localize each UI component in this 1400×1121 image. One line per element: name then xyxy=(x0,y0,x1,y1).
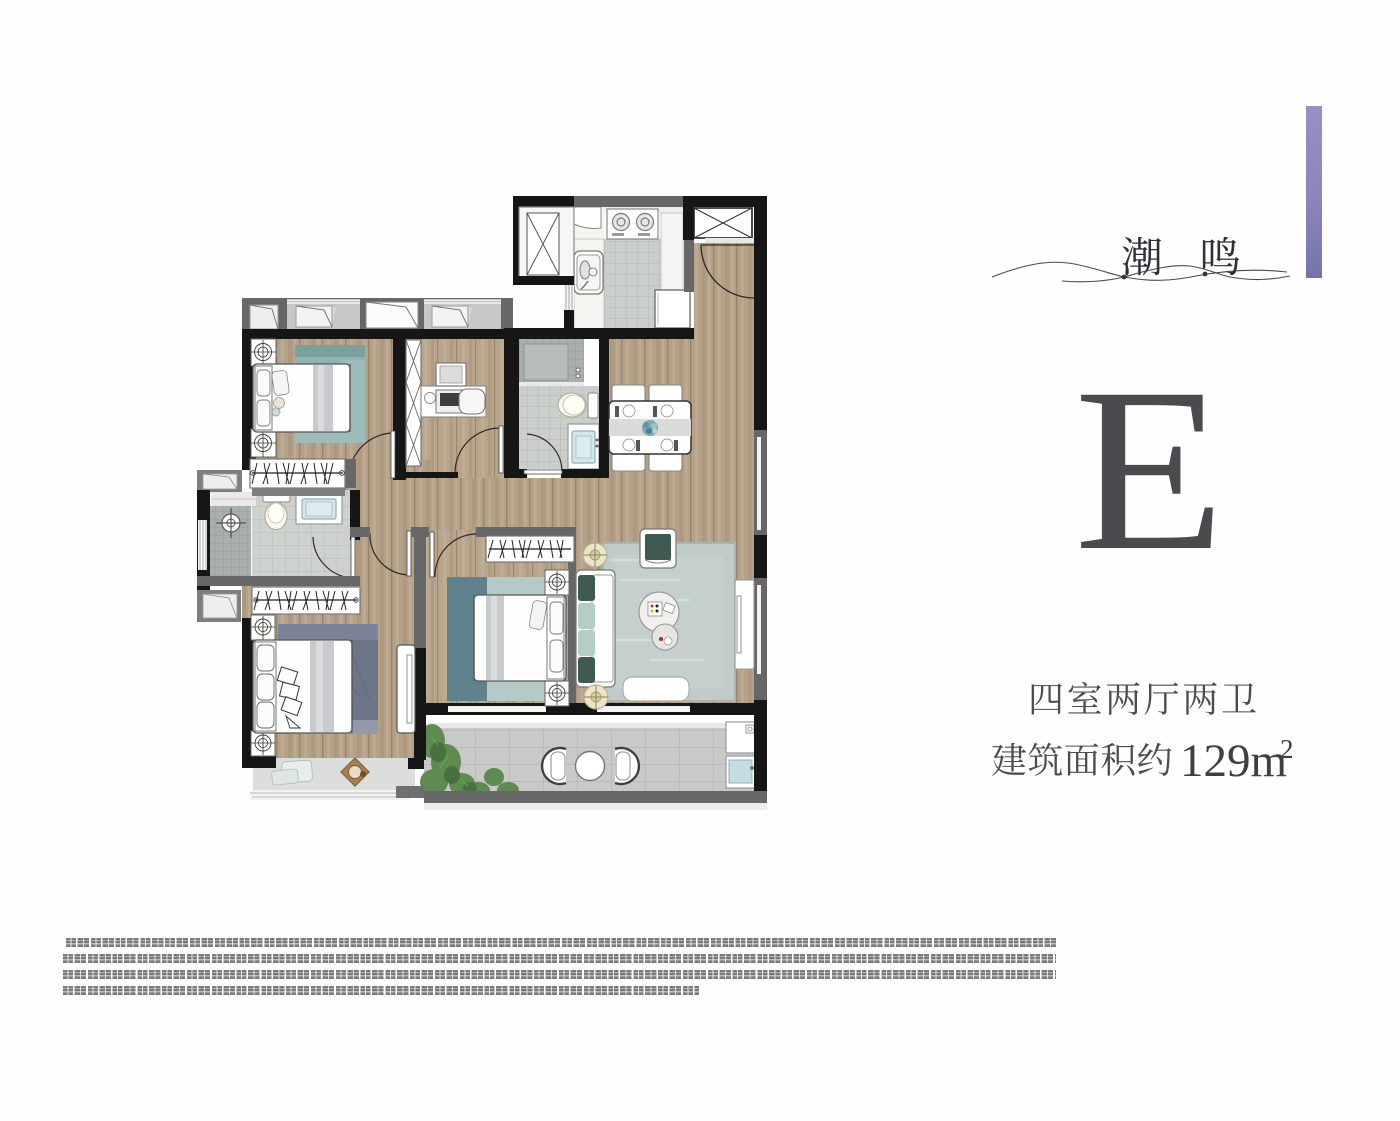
svg-text:2: 2 xyxy=(1280,734,1294,764)
svg-text:129m: 129m xyxy=(1180,735,1287,787)
